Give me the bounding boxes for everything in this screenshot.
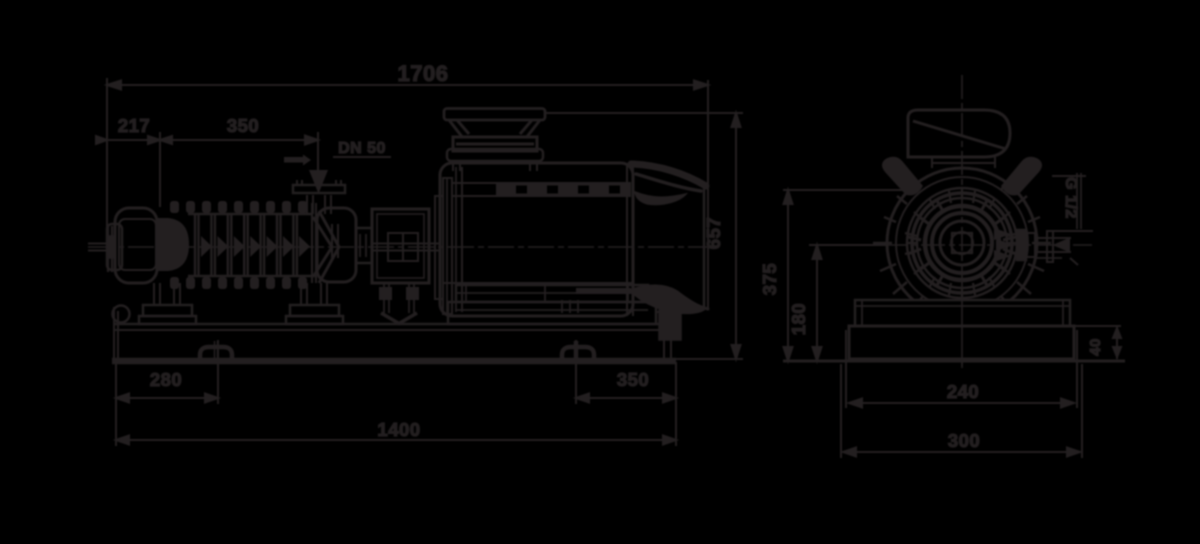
svg-text:280: 280 [150,369,182,390]
svg-text:180: 180 [788,303,809,335]
svg-text:1706: 1706 [398,61,449,86]
svg-text:375: 375 [759,263,780,295]
svg-text:1400: 1400 [377,419,420,440]
svg-text:657: 657 [703,217,724,249]
svg-text:240: 240 [947,381,979,402]
svg-text:350: 350 [617,369,649,390]
svg-text:350: 350 [227,115,259,136]
svg-text:G 1/2: G 1/2 [1062,177,1079,219]
svg-text:217: 217 [118,115,150,136]
svg-text:40: 40 [1087,338,1104,356]
svg-text:300: 300 [948,430,980,451]
svg-text:DN 50: DN 50 [338,140,386,157]
